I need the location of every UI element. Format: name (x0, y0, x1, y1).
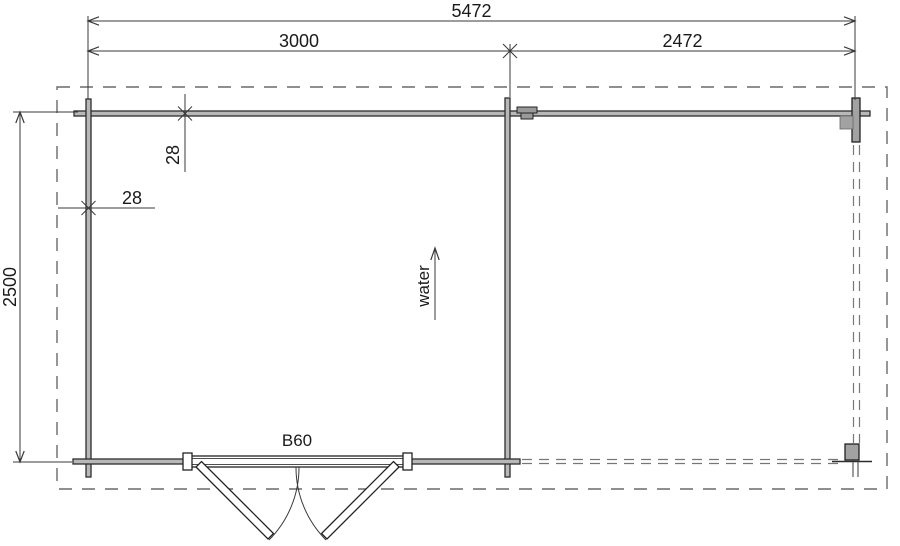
door-jamb-right (403, 453, 412, 470)
dim-wall-thickness-front: 28 (163, 130, 183, 180)
dimension-lines (13, 16, 855, 462)
top-wall (74, 111, 870, 116)
terrace-edge-dashed-right (854, 145, 860, 443)
door-leaf-right (322, 462, 400, 540)
left-wall (86, 99, 91, 477)
door-swing-arc-right (296, 467, 326, 540)
door-label: B60 (257, 431, 337, 451)
wall-connector (517, 107, 537, 119)
bottom-wall-left (73, 459, 187, 464)
dim-overall-width: 5472 (88, 1, 855, 21)
floor-plan-drawing: 5472 3000 2472 2500 28 28 water B60 (0, 0, 900, 546)
door-jamb-left (183, 453, 192, 470)
dim-room-width: 3000 (88, 31, 510, 51)
double-door (183, 453, 412, 540)
door-swing-arc-left (269, 467, 299, 540)
dim-wall-thickness-side: 28 (107, 188, 157, 208)
plan-linework (0, 0, 900, 546)
log-walls (73, 98, 870, 477)
dim-overall-depth: 2500 (0, 252, 20, 322)
door-leaf-left (196, 462, 274, 540)
terrace-edge-dashed-bottom (522, 460, 845, 464)
dim-terrace-width: 2472 (510, 31, 855, 51)
water-label: water (414, 255, 434, 317)
corner-post-bottom-right (845, 444, 859, 477)
bottom-wall-right (408, 459, 520, 464)
door-frame (187, 456, 408, 467)
corner-post-top-right (840, 98, 860, 142)
middle-wall (505, 98, 510, 477)
